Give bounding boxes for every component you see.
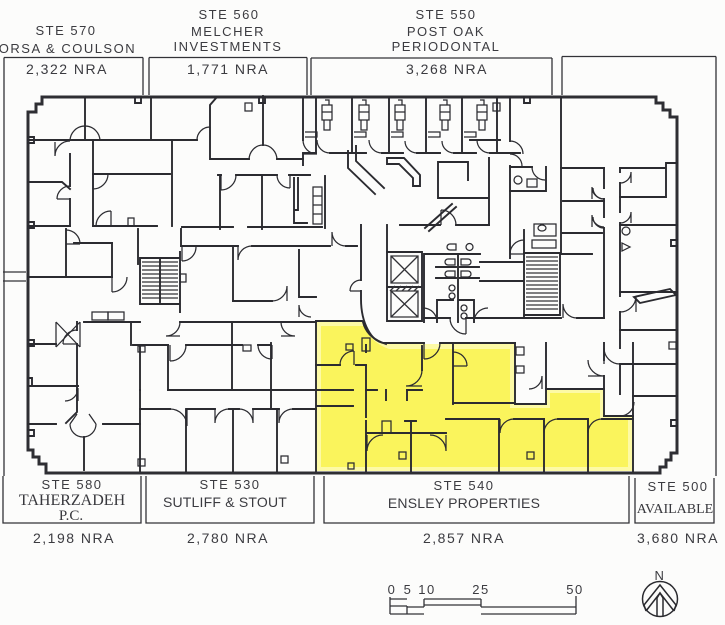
svg-text:STE 580: STE 580 xyxy=(41,477,102,492)
svg-text:STE 540: STE 540 xyxy=(433,478,494,493)
svg-text:50: 50 xyxy=(566,582,583,597)
svg-text:MELCHER: MELCHER xyxy=(191,24,265,39)
svg-text:STE 500: STE 500 xyxy=(647,479,708,494)
svg-text:10: 10 xyxy=(418,582,435,597)
svg-text:1,771 NRA: 1,771 NRA xyxy=(187,61,269,77)
svg-text:AVAILABLE: AVAILABLE xyxy=(637,502,714,517)
svg-text:STE 530: STE 530 xyxy=(199,477,260,492)
svg-text:0: 0 xyxy=(388,582,397,597)
svg-text:POST OAK: POST OAK xyxy=(407,24,485,39)
svg-text:STE 560: STE 560 xyxy=(198,7,259,22)
svg-text:SUTLIFF & STOUT: SUTLIFF & STOUT xyxy=(163,494,287,510)
svg-text:P.C.: P.C. xyxy=(59,508,83,524)
svg-text:DORSA & COULSON: DORSA & COULSON xyxy=(0,41,136,56)
svg-text:2,198 NRA: 2,198 NRA xyxy=(33,530,115,546)
svg-text:25: 25 xyxy=(472,582,489,597)
svg-text:ENSLEY PROPERTIES: ENSLEY PROPERTIES xyxy=(388,495,540,511)
svg-text:PERIODONTAL: PERIODONTAL xyxy=(392,39,501,54)
svg-text:5: 5 xyxy=(404,582,413,597)
svg-text:STE 570: STE 570 xyxy=(35,23,96,38)
svg-text:2,780 NRA: 2,780 NRA xyxy=(187,530,269,546)
svg-text:2,322 NRA: 2,322 NRA xyxy=(26,61,108,77)
svg-text:2,857 NRA: 2,857 NRA xyxy=(423,530,505,546)
svg-text:INVESTMENTS: INVESTMENTS xyxy=(174,39,283,54)
svg-text:3,680 NRA: 3,680 NRA xyxy=(637,530,719,546)
svg-text:STE 550: STE 550 xyxy=(415,7,476,22)
svg-text:TAHERZADEH: TAHERZADEH xyxy=(19,492,126,509)
svg-text:3,268 NRA: 3,268 NRA xyxy=(406,61,488,77)
